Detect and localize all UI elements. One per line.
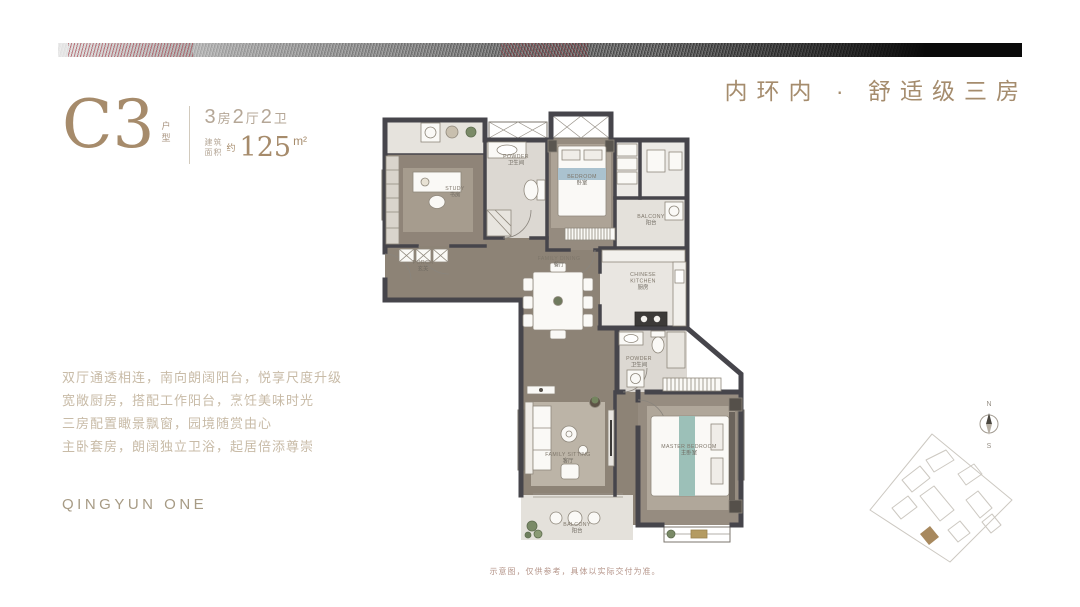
- strip-red-accent-mid: [501, 43, 588, 57]
- room-label: POWDER: [503, 154, 529, 160]
- headline-tagline: 内环内 · 舒适级三房: [725, 72, 1028, 106]
- site-plan-highlight: [920, 526, 939, 545]
- room-label: 餐厅: [554, 261, 565, 269]
- disclaimer: 示意图，仅供参考，具体以实际交付为准。: [445, 566, 705, 577]
- room-label: PORCH: [413, 260, 434, 266]
- feature-line: 宽敞厨房，搭配工作阳台，烹饪美味时光: [62, 394, 342, 407]
- compass-needle-north: [986, 413, 992, 424]
- feature-list: 双厅通透相连，南向朗阔阳台，悦享尺度升级 宽敞厨房，搭配工作阳台，烹饪美味时光 …: [62, 371, 342, 463]
- room-label: 书房: [450, 191, 461, 199]
- room-label: CHINESE: [630, 272, 656, 278]
- site-plan: [862, 430, 1018, 566]
- poster: 内环内 · 舒适级三房 C3 户型 3 房 2 厅 2 卫 建筑 面积 约 12…: [0, 0, 1080, 607]
- room-label: FAMILY DINING: [538, 256, 581, 262]
- room-label: 卧室: [577, 179, 588, 187]
- room-label: STUDY: [445, 186, 465, 192]
- brand-logo: QINGYUN ONE: [62, 496, 207, 513]
- room-label: 厨房: [638, 283, 649, 291]
- room-label: 客厅: [563, 457, 574, 465]
- room-label: BALCONY: [563, 522, 591, 528]
- room-label: 阳台: [572, 527, 583, 535]
- unit-info: C3 户型 3 房 2 厅 2 卫 建筑 面积 约 125 m²: [62, 94, 307, 164]
- strip-red-accent-left: [68, 43, 193, 57]
- room-label: MASTER BEDROOM: [661, 444, 716, 450]
- feature-line: 双厅通透相连，南向朗阔阳台，悦享尺度升级: [62, 371, 342, 384]
- feature-line: 三房配置瞰景飘窗，园境随赏由心: [62, 417, 342, 430]
- floor-plan: STUDY书房POWDER卫生间BEDROOM卧室BALCONY阳台CHINES…: [355, 110, 745, 545]
- unit-area: 建筑 面积 约 125 m²: [205, 134, 308, 161]
- area-approx: 约: [227, 141, 236, 154]
- room-label: BEDROOM: [567, 174, 597, 180]
- unit-code: C3: [62, 94, 155, 157]
- area-label: 建筑 面积: [205, 138, 223, 158]
- room-label: 卫生间: [508, 159, 524, 167]
- room-label: KITCHEN: [630, 279, 656, 285]
- decorative-strip: [58, 43, 1022, 57]
- compass-north-label: N: [986, 401, 991, 408]
- room-label: 玄关: [418, 265, 429, 273]
- unit-specs: 3 房 2 厅 2 卫 建筑 面积 约 125 m²: [189, 106, 308, 164]
- room-label: FAMILY SITTING: [545, 452, 590, 458]
- area-unit: m²: [293, 134, 307, 148]
- room-label: 阳台: [646, 219, 657, 227]
- room-label: 卫生间: [631, 361, 647, 369]
- room-label: POWDER: [626, 356, 652, 362]
- unit-code-tag: 户型: [160, 121, 173, 145]
- room-label: 主卧室: [681, 449, 698, 457]
- area-value: 125: [240, 134, 292, 161]
- unit-layout: 3 房 2 厅 2 卫: [205, 106, 308, 129]
- room-label: BALCONY: [637, 214, 665, 220]
- feature-line: 主卧套房，朗阔独立卫浴，起居倍添尊崇: [62, 440, 342, 453]
- floor-plan-svg: STUDY书房POWDER卫生间BEDROOM卧室BALCONY阳台CHINES…: [355, 110, 745, 545]
